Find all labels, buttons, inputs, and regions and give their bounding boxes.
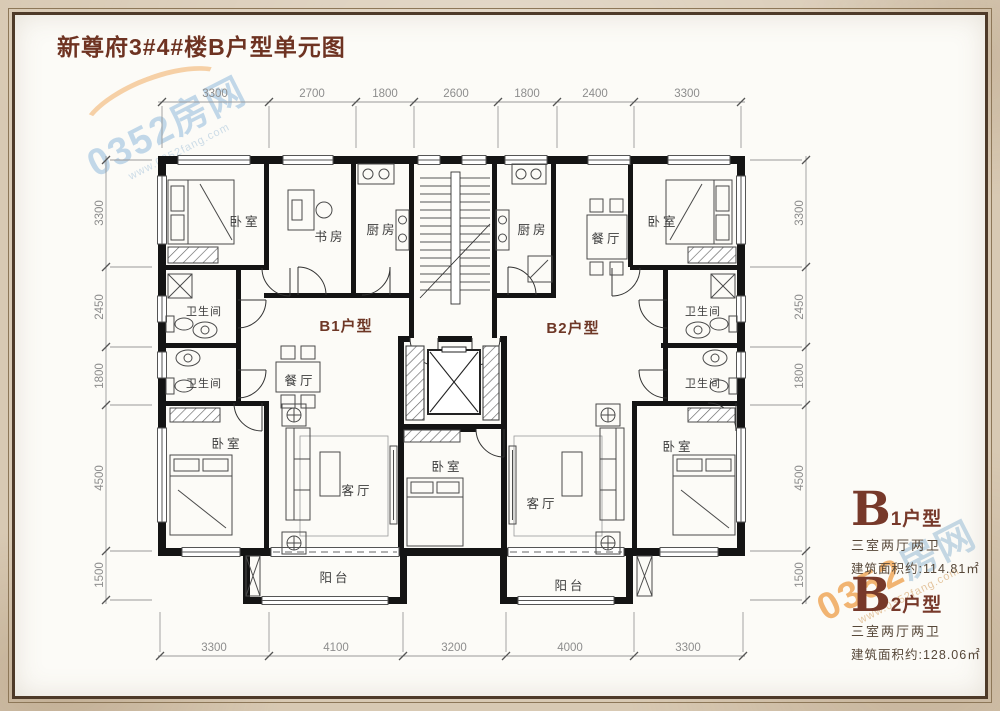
dim-bottom-3: 4000 (557, 642, 583, 654)
room-label-bedroom: 卧室 (647, 214, 678, 229)
dim-bottom-2: 3200 (441, 642, 467, 654)
staircase (420, 172, 490, 304)
room-label-bathroom: 卫生间 (186, 376, 222, 390)
b1-layout: 三室两厅两卫 (851, 535, 1000, 554)
room-label-bathroom: 卫生间 (685, 304, 721, 318)
dim-left-0: 3300 (94, 200, 106, 226)
dim-left-4: 1500 (94, 562, 106, 588)
dim-left-1: 2450 (94, 294, 106, 320)
dim-right-2: 1800 (794, 363, 806, 389)
room-label-kitchen: 厨房 (366, 222, 397, 237)
dim-top-1: 2700 (299, 88, 325, 100)
bathroom-fixtures (686, 274, 737, 394)
dim-left-2: 1800 (94, 363, 106, 389)
dim-bottom-0: 3300 (201, 642, 227, 654)
room-label-dining: 餐厅 (591, 231, 622, 246)
bed (168, 180, 234, 244)
shaft (246, 556, 652, 596)
dim-left-3: 4500 (94, 465, 106, 491)
bed (170, 455, 232, 535)
dim-bottom-4: 3300 (675, 642, 701, 654)
b2-suffix: 2户型 (891, 595, 943, 616)
b2-area: 建筑面积约:128.06㎡ (851, 644, 1000, 663)
room-label-dining: 餐厅 (284, 373, 315, 388)
b1-letter: B (851, 482, 891, 537)
b1-info-title: B1户型 (851, 489, 1000, 531)
dim-top-6: 3300 (674, 88, 700, 100)
floor-plan: 卧室 书房 厨房 厨房 餐厅 卧室 卫生间 卫生间 卫生间 卫生间 餐厅 卧室 … (0, 0, 1000, 711)
b2-info: B2户型 三室两厅两卫 建筑面积约:128.06㎡ (851, 575, 1000, 663)
dim-top-3: 2600 (443, 88, 469, 100)
dim-right-0: 3300 (794, 200, 806, 226)
b2-layout: 三室两厅两卫 (851, 621, 1000, 640)
b1-info: B1户型 三室两厅两卫 建筑面积约:114.81㎡ (851, 489, 1000, 577)
dim-right-4: 1500 (794, 562, 806, 588)
kitchen-fixtures (358, 164, 409, 250)
room-label-bathroom: 卫生间 (186, 304, 222, 318)
room-label-bedroom: 卧室 (431, 459, 462, 474)
room-label-kitchen: 厨房 (517, 222, 548, 237)
b1-suffix: 1户型 (891, 509, 943, 530)
bathroom-fixtures (166, 274, 217, 394)
room-label-bedroom: 卧室 (211, 436, 242, 451)
room-label-living: 客厅 (341, 483, 372, 498)
desk (288, 190, 332, 230)
room-label-bedroom: 卧室 (229, 214, 260, 229)
dim-top-0: 3300 (202, 88, 228, 100)
dim-bottom-1: 4100 (323, 642, 349, 654)
b2-info-title: B2户型 (851, 575, 1000, 617)
dim-top-4: 1800 (514, 88, 540, 100)
dim-right-3: 4500 (794, 465, 806, 491)
room-label-balcony: 阳台 (319, 570, 350, 585)
unit-label-b2: B2户型 (546, 319, 599, 337)
bed (407, 478, 463, 546)
sofa-set (509, 404, 624, 554)
dim-top-2: 1800 (372, 88, 398, 100)
room-label-living: 客厅 (526, 496, 557, 511)
room-label-balcony: 阳台 (554, 578, 585, 593)
bed (666, 180, 732, 244)
dim-right-1: 2450 (794, 294, 806, 320)
sofa-set (282, 404, 397, 554)
unit-label-b1: B1户型 (319, 317, 372, 335)
b2-letter: B (851, 568, 891, 623)
dim-top-5: 2400 (582, 88, 608, 100)
room-label-study: 书房 (314, 229, 345, 244)
room-label-bathroom: 卫生间 (685, 376, 721, 390)
bed (673, 455, 735, 535)
elevator (406, 346, 499, 420)
room-label-bedroom: 卧室 (662, 439, 693, 454)
page-title: 新尊府3#4#楼B户型单元图 (57, 28, 346, 62)
